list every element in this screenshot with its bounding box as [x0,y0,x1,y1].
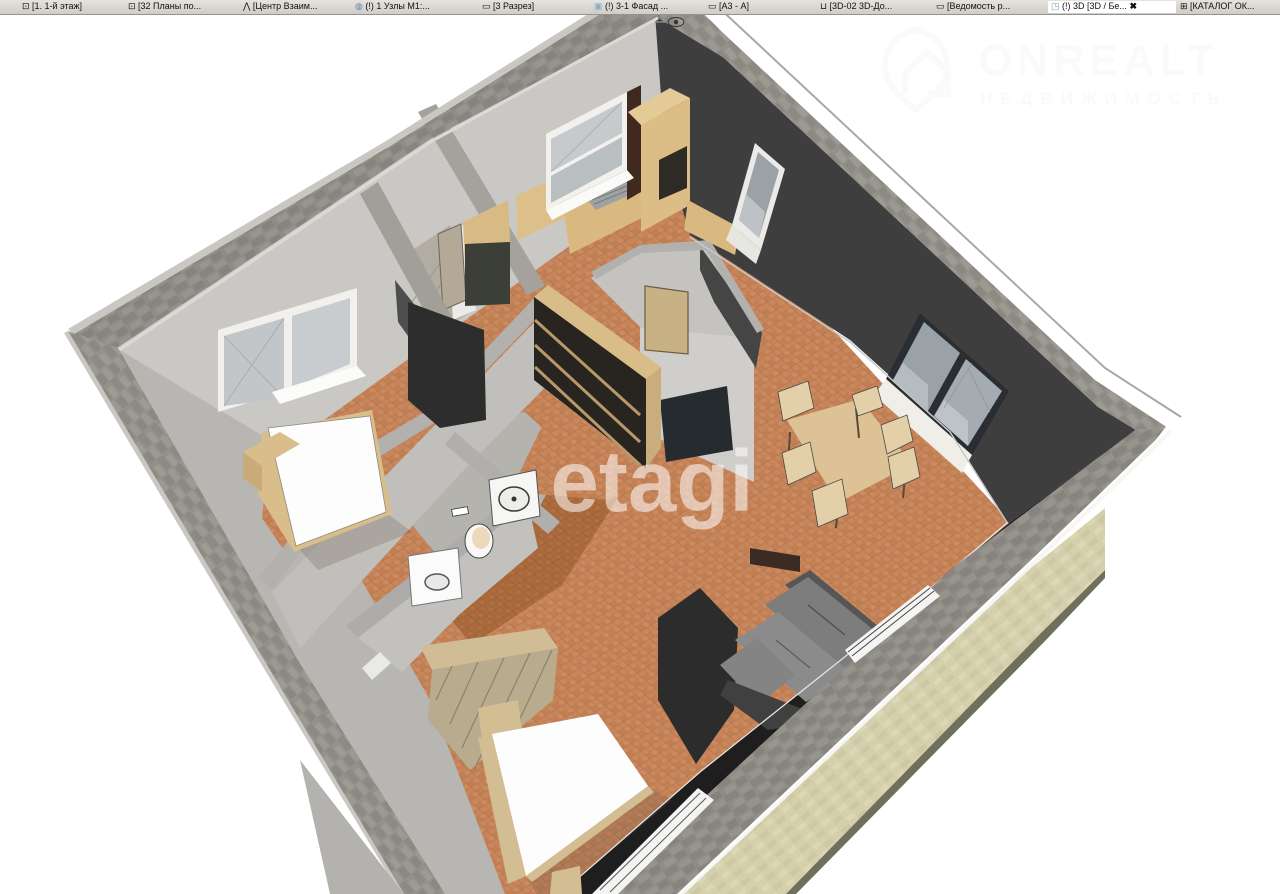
svg-text:etagi: etagi [550,433,753,530]
svg-text:НЕДВИЖИМОСТЬ: НЕДВИЖИМОСТЬ [980,89,1228,108]
svg-text:ONREALT: ONREALT [978,36,1219,85]
